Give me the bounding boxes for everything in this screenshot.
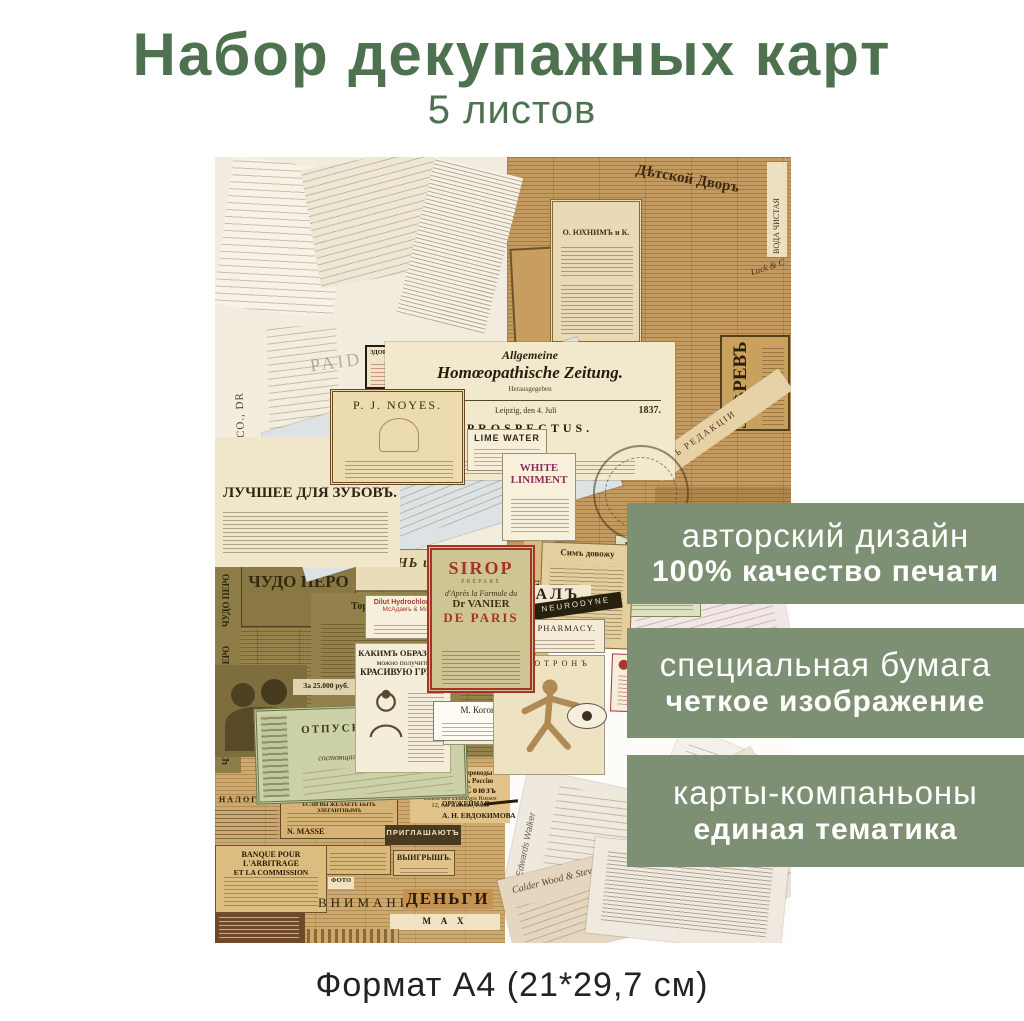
clip-banque: BANQUE POUR L'ARBITRAGE ET LA COMMISSION <box>215 845 327 913</box>
sirop-prepare: PRÉPARÉ <box>432 579 530 585</box>
label-lines <box>345 458 453 478</box>
ad-luchshee-label: ЛУЧШЕЕ ДЛЯ ЗУБОВЪ. <box>223 485 397 502</box>
clip-foto-label: ФОТО <box>328 877 354 884</box>
clip-max: M A X <box>390 914 500 930</box>
sirop-vanier: Dr VANIER <box>432 598 530 610</box>
feature-banner-design: авторский дизайн 100% качество печати <box>627 503 1024 604</box>
ad-lines <box>561 282 633 334</box>
strip-voda: ВОДА ЧИСТАЯ <box>767 162 787 257</box>
ornate-strip <box>307 929 399 943</box>
label-liniment-1: WHITE <box>503 462 575 474</box>
banner-companion-bold: единая тематика <box>627 812 1024 848</box>
silhouette-icon <box>261 679 287 705</box>
zeitung-line1: Allgemeine <box>385 348 675 363</box>
page-subtitle: 5 листов <box>0 88 1024 133</box>
label-lines <box>511 498 569 532</box>
ad-25000: За 25.000 руб. <box>293 679 359 695</box>
label-noyes-text: P. J. NOYES. <box>333 398 462 413</box>
banner-design-light: авторский дизайн <box>627 517 1024 555</box>
banner-paper-light: специальная бумага <box>627 646 1024 684</box>
clip-lines <box>400 865 448 873</box>
clip-max-label: M A X <box>390 916 500 926</box>
clip-lines <box>215 809 277 839</box>
scales-icon <box>379 418 419 452</box>
sirop-paris: DE PARIS <box>432 610 530 626</box>
feature-banner-companion: карты-компаньоны единая тематика <box>627 755 1024 867</box>
clip-evdokimova-label: А. Н. ЕВДОКИМОВА <box>442 811 516 820</box>
label-noyes: P. J. NOYES. <box>330 389 465 485</box>
card-sim-label: Симъ довожу <box>542 546 632 559</box>
clip-foto: ФОТО <box>328 877 354 889</box>
sirop-title: SIROP <box>432 558 530 579</box>
woman-icon <box>364 688 408 740</box>
clip-elegant: ЕСЛИ ВЫ ЖЕЛАЕТЕ БЫТЬ ЭЛЕГАНТНЫМЪ N. MASS… <box>280 799 398 839</box>
ad-yuhin-label: О. ЮХНИМЪ и К. <box>553 228 639 237</box>
banner-design-bold: 100% качество печати <box>627 554 1024 590</box>
clip-pompeia <box>325 845 391 875</box>
guilloche-band <box>261 715 290 798</box>
banner-companion-light: карты-компаньоны <box>627 774 1024 812</box>
clip-vyigrysh-label: ВЫИГРЫШЪ. <box>394 853 454 862</box>
strip-chudo-label-1: ЧУДО ПЕРО <box>221 561 231 627</box>
label-lime-text: LIME WATER <box>468 433 546 443</box>
clip-priglashayut-label: ПРИГЛАШАЮТЪ <box>385 828 461 837</box>
eye-icon <box>567 703 607 729</box>
clip-oruzheynaya-label: ОРУЖЕЙНАЯ <box>442 800 489 808</box>
clip-oruzheynaya: ОРУЖЕЙНАЯ А. Н. ЕВДОКИМОВА <box>442 800 520 824</box>
ad-lines <box>223 509 388 553</box>
clip-vyigrysh: ВЫИГРЫШЪ. <box>393 850 455 876</box>
clip-priglashayut: ПРИГЛАШАЮТЪ <box>385 825 461 845</box>
zeitung-line2: Homœopathische Zeitung. <box>385 363 675 383</box>
silhouette-icon <box>231 683 255 707</box>
feature-banner-paper: специальная бумага четкое изображение <box>627 628 1024 738</box>
label-liniment-2: LINIMENT <box>503 474 575 486</box>
clip-lines <box>224 876 318 906</box>
sirop-formule: d'Après la Formule du <box>432 589 530 598</box>
clip-lines <box>287 812 393 826</box>
ad-25000-label: За 25.000 руб. <box>293 681 359 690</box>
dark-clipping-lines <box>219 914 299 938</box>
page-title: Набор декупажных карт <box>0 20 1024 89</box>
clip-dengi-label: ДЕНЬГИ <box>403 889 493 909</box>
clip-masse-label: N. MASSE <box>287 827 324 836</box>
clip-banque-1: BANQUE POUR L'ARBITRAGE <box>216 850 326 868</box>
clip-lines <box>330 850 386 870</box>
label-sirop: SIROP PRÉPARÉ d'Après la Formule du Dr V… <box>427 545 535 693</box>
strip-voda-label: ВОДА ЧИСТАЯ <box>772 166 781 254</box>
label-lines <box>442 650 520 684</box>
promo-image: Набор декупажных карт 5 листов TO J. E. … <box>0 0 1024 1021</box>
ad-chudo-label: ЧУДО ПЕРО <box>242 572 355 592</box>
ad-lines <box>561 246 633 276</box>
banner-paper-bold: четкое изображение <box>627 684 1024 720</box>
ad-yuhin: О. ЮХНИМЪ и К. <box>550 199 642 344</box>
format-caption: Формат А4 (21*29,7 см) <box>0 966 1024 1005</box>
label-liniment: WHITE LINIMENT <box>502 453 576 541</box>
zeitung-year: 1837. <box>639 405 662 416</box>
zeitung-place: Leipzig, den 4. Juli <box>495 406 557 415</box>
